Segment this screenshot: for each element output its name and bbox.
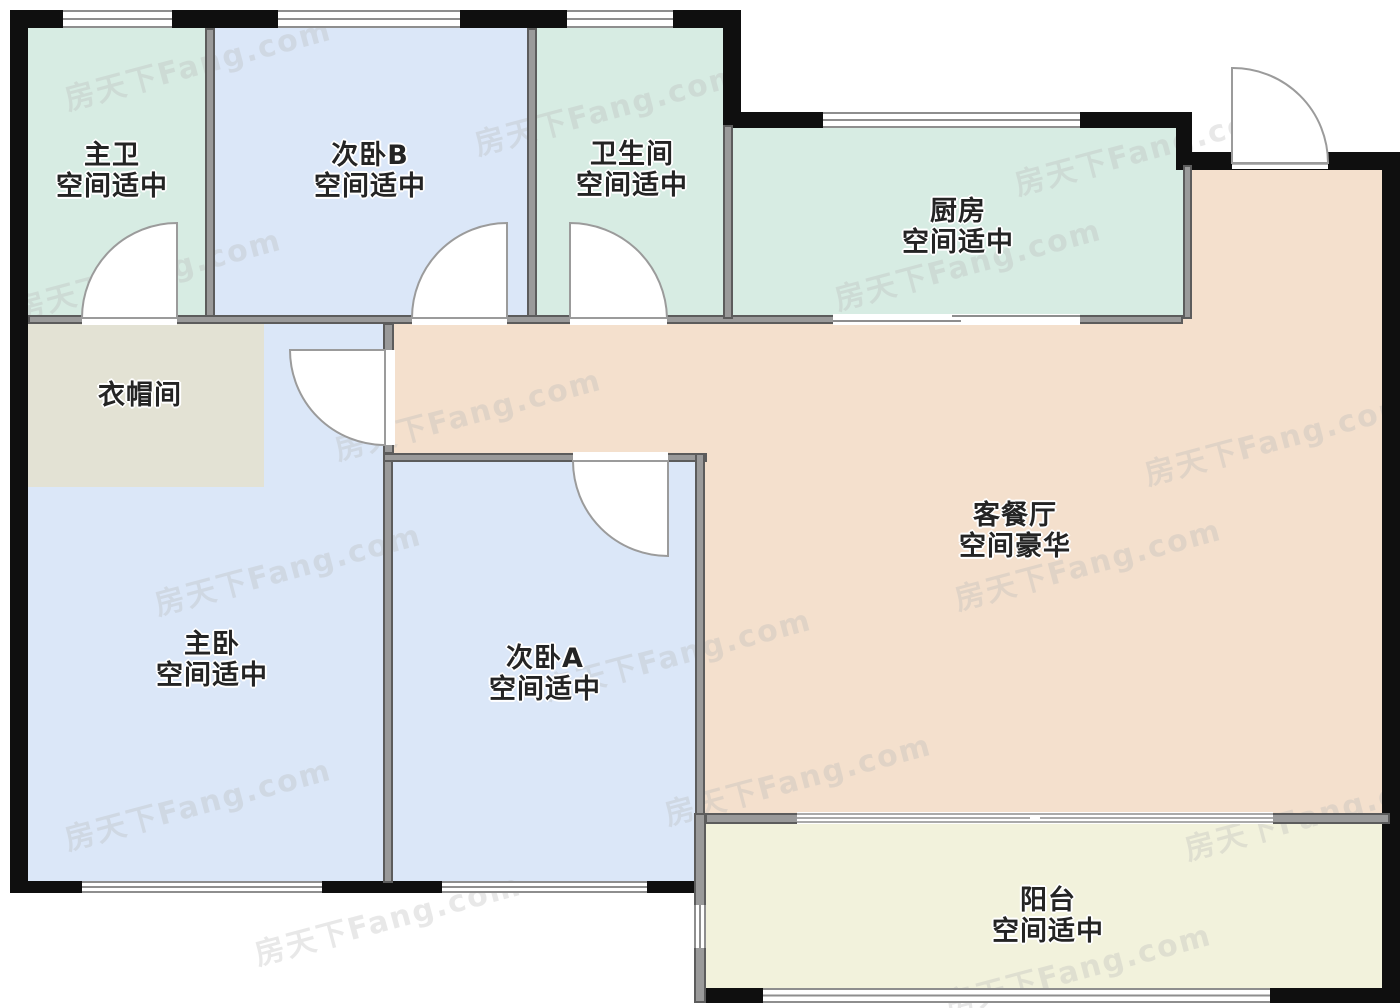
room-label-cloakroom: 衣帽间 <box>40 380 240 411</box>
room-desc: 空间适中 <box>112 660 312 691</box>
room-desc: 空间适中 <box>12 171 212 202</box>
door-arc-bedroom-a <box>573 461 668 556</box>
room-name: 厨房 <box>858 196 1058 227</box>
door-arc-bathroom <box>570 223 667 318</box>
room-name: 卫生间 <box>532 139 732 170</box>
room-label-balcony: 阳台 空间适中 <box>948 885 1148 947</box>
room-label-master-bed: 主卧 空间适中 <box>112 629 312 691</box>
room-desc: 空间适中 <box>858 227 1058 258</box>
room-desc: 空间适中 <box>445 674 645 705</box>
room-name: 次卧A <box>445 643 645 674</box>
door-arc-entry <box>1232 68 1328 163</box>
room-name: 衣帽间 <box>40 380 240 411</box>
room-name: 主卫 <box>12 140 212 171</box>
room-label-bathroom: 卫生间 空间适中 <box>532 139 732 201</box>
room-name: 主卧 <box>112 629 312 660</box>
room-label-master-bath: 主卫 空间适中 <box>12 140 212 202</box>
room-label-kitchen: 厨房 空间适中 <box>858 196 1058 258</box>
room-desc: 空间适中 <box>948 916 1148 947</box>
door-arc-bedroom-b <box>412 223 507 318</box>
room-desc: 空间豪华 <box>915 531 1115 562</box>
room-label-bedroom-b: 次卧B 空间适中 <box>270 140 470 202</box>
room-desc: 空间适中 <box>270 171 470 202</box>
room-desc: 空间适中 <box>532 170 732 201</box>
door-arc-master-bed <box>290 350 385 445</box>
door-arc-master-bath <box>82 223 177 318</box>
room-name: 次卧B <box>270 140 470 171</box>
floor-plan: 房天下Fang.com 房天下Fang.com 房天下Fang.com 房天下F… <box>0 0 1400 1008</box>
room-label-living: 客餐厅 空间豪华 <box>915 500 1115 562</box>
room-name: 客餐厅 <box>915 500 1115 531</box>
room-name: 阳台 <box>948 885 1148 916</box>
room-label-bedroom-a: 次卧A 空间适中 <box>445 643 645 705</box>
